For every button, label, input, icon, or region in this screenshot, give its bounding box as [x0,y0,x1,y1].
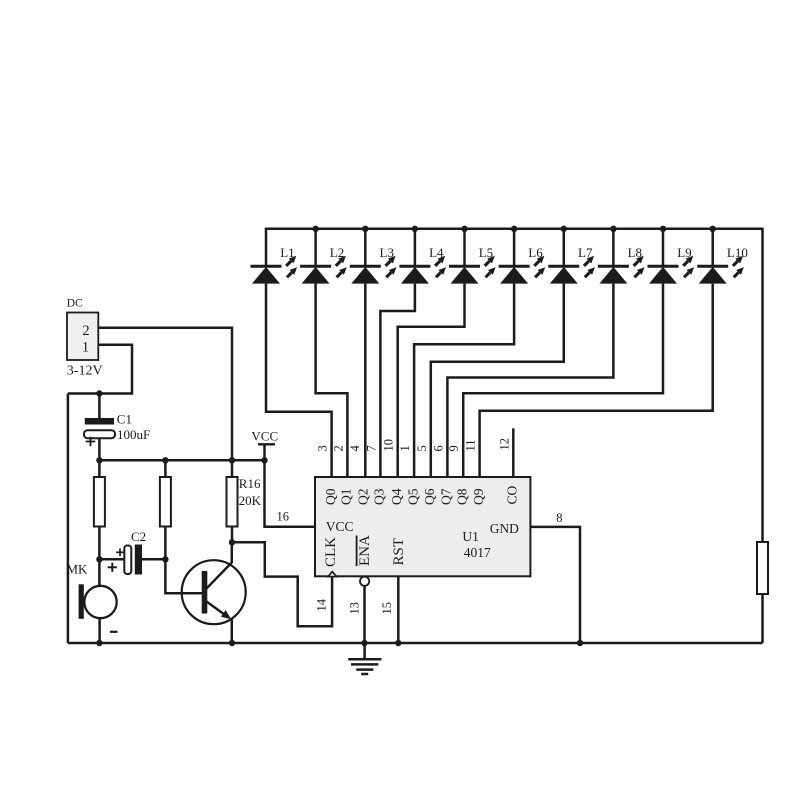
svg-text:3-12V: 3-12V [67,364,103,379]
svg-text:VCC: VCC [326,519,354,534]
svg-text:VCC: VCC [251,429,278,444]
svg-text:8: 8 [556,511,562,525]
svg-text:6: 6 [431,445,445,451]
svg-text:C1: C1 [117,411,132,426]
svg-text:1: 1 [398,445,412,451]
svg-text:Q0: Q0 [323,488,338,505]
svg-text:CO: CO [505,485,520,504]
svg-text:CLK: CLK [323,537,339,567]
svg-text:U1: U1 [462,529,479,544]
svg-text:MK: MK [67,562,89,577]
svg-text:C2: C2 [131,529,146,544]
svg-text:Q7: Q7 [439,488,454,505]
svg-text:1: 1 [82,340,89,356]
svg-text:5: 5 [415,445,429,451]
svg-text:Q1: Q1 [339,489,354,506]
svg-text:DC: DC [67,298,83,310]
svg-text:Q3: Q3 [372,488,387,505]
svg-text:Q6: Q6 [422,488,437,505]
svg-text:16: 16 [277,509,290,523]
svg-text:14: 14 [315,598,329,611]
svg-text:R16: R16 [239,476,261,491]
svg-text:7: 7 [364,445,378,451]
svg-text:100uF: 100uF [117,427,150,442]
svg-text:13: 13 [348,602,362,615]
svg-text:2: 2 [331,445,345,451]
svg-text:3: 3 [316,445,330,451]
svg-text:Q5: Q5 [405,488,420,505]
svg-text:2: 2 [82,323,89,339]
svg-text:RST: RST [391,538,407,566]
svg-text:10: 10 [382,439,396,452]
svg-text:GND: GND [490,521,519,536]
svg-text:15: 15 [380,602,394,615]
svg-text:L10: L10 [727,245,748,260]
svg-text:4: 4 [348,445,362,452]
svg-text:12: 12 [497,438,511,451]
svg-text:Q8: Q8 [454,488,469,505]
svg-text:4017: 4017 [464,545,491,560]
svg-text:Q9: Q9 [471,488,486,505]
svg-text:Q2: Q2 [355,489,370,506]
svg-text:9: 9 [447,445,461,451]
svg-text:20K: 20K [239,493,262,508]
svg-text:11: 11 [464,439,478,451]
svg-text:ENA: ENA [357,535,373,566]
svg-text:Q4: Q4 [389,488,404,505]
